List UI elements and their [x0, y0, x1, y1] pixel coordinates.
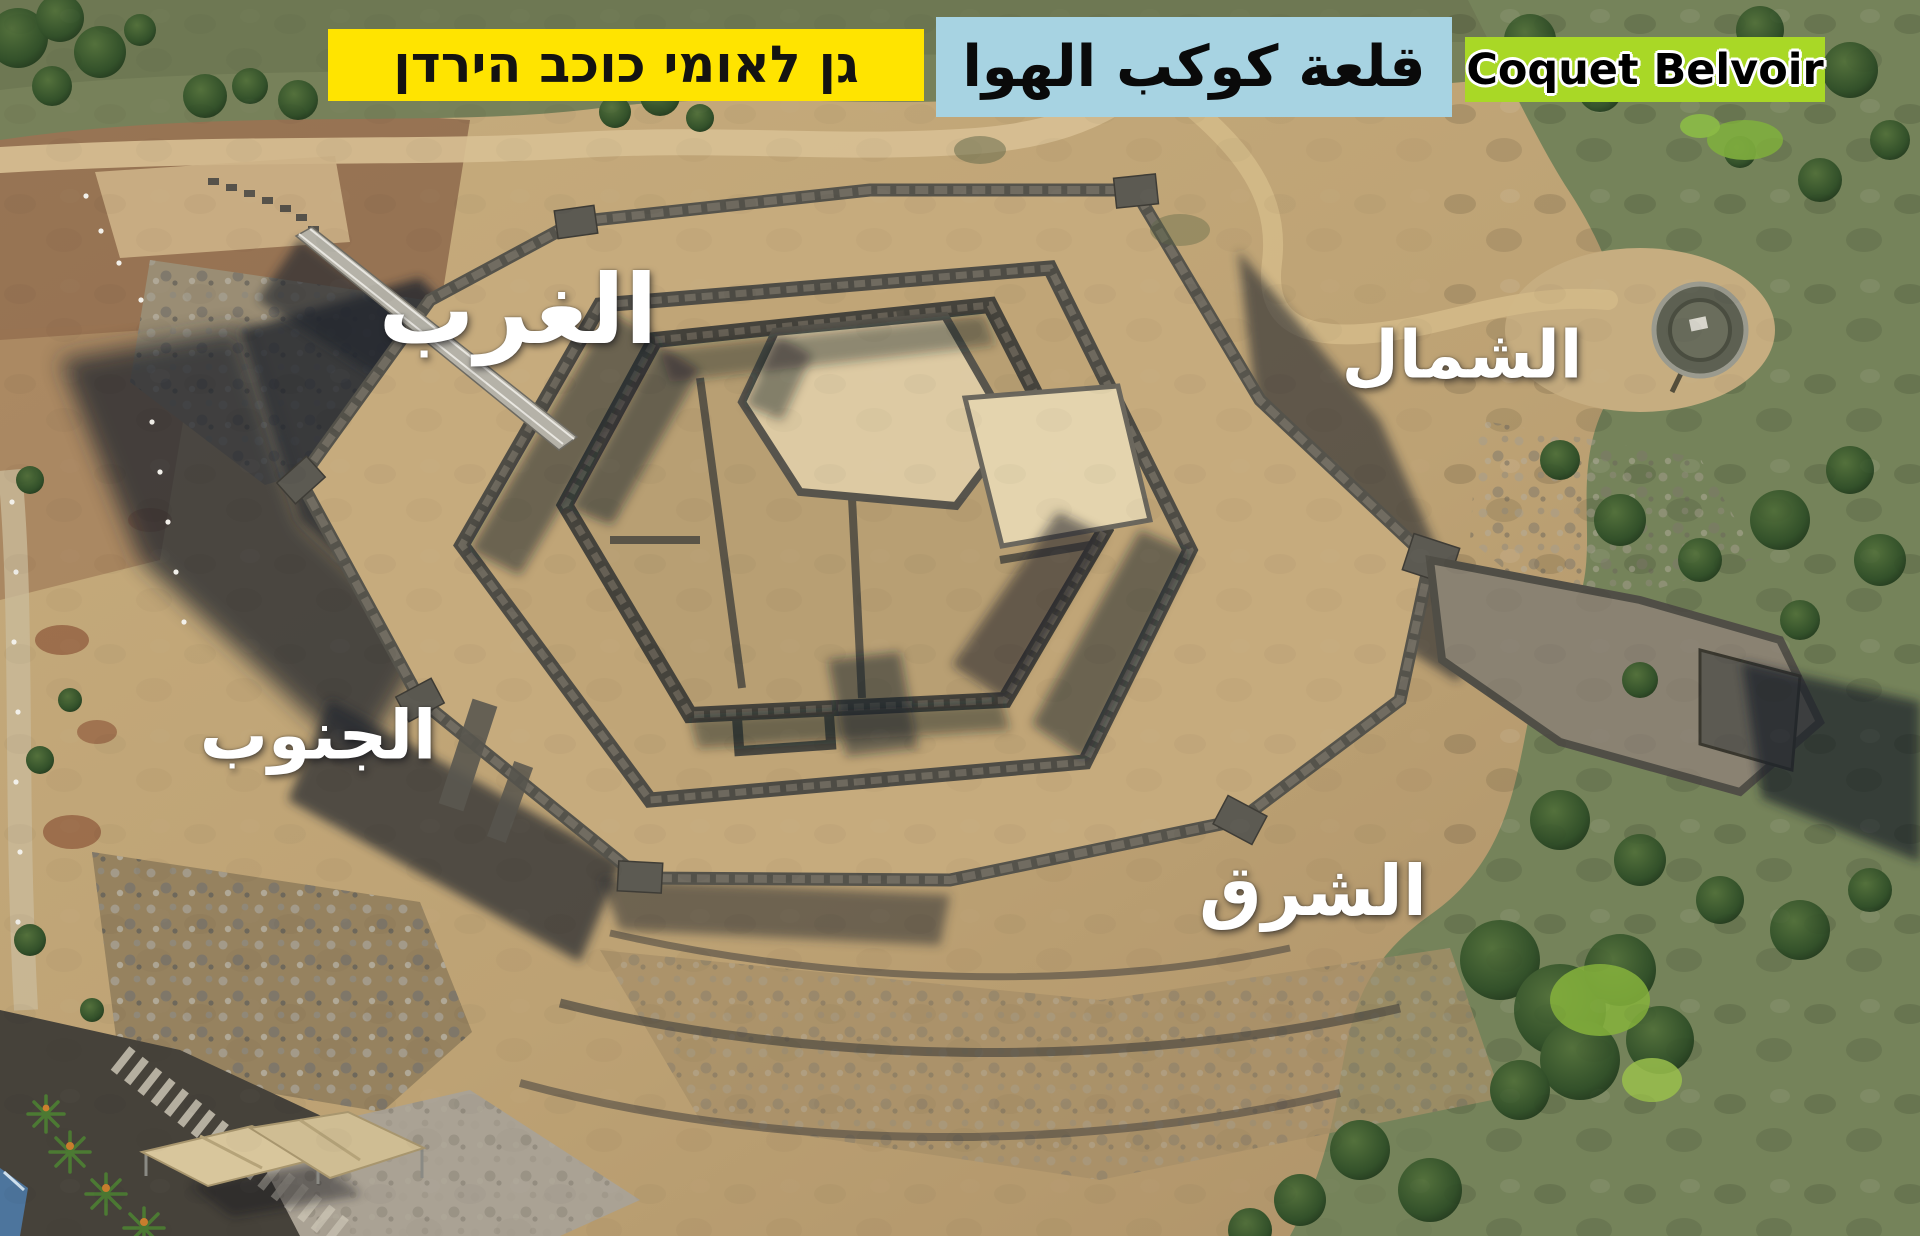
- direction-label-south: الجنوب: [200, 697, 437, 776]
- direction-label-east: الشرق: [1199, 850, 1427, 932]
- texture-overlay: [0, 0, 1920, 1236]
- fortress-english-label: Coquet Belvoir: [1466, 45, 1823, 95]
- direction-label-north: الشمال: [1342, 317, 1583, 394]
- national-park-hebrew-banner: גן לאומי כוכב הירדן: [328, 29, 924, 101]
- national-park-hebrew-label: גן לאומי כוכב הירדן: [393, 36, 859, 95]
- fortress-arabic-banner: قلعة كوكب الهوا: [936, 17, 1452, 117]
- fortress-english-banner: Coquet Belvoir: [1465, 37, 1825, 102]
- aerial-photo-belvoir: גן לאומי כוכב הירדן قلعة كوكب الهوا Coqu…: [0, 0, 1920, 1236]
- direction-label-west: الغرب: [378, 254, 657, 366]
- fortress-arabic-label: قلعة كوكب الهوا: [962, 34, 1425, 100]
- aerial-photo-scene: [0, 0, 1920, 1236]
